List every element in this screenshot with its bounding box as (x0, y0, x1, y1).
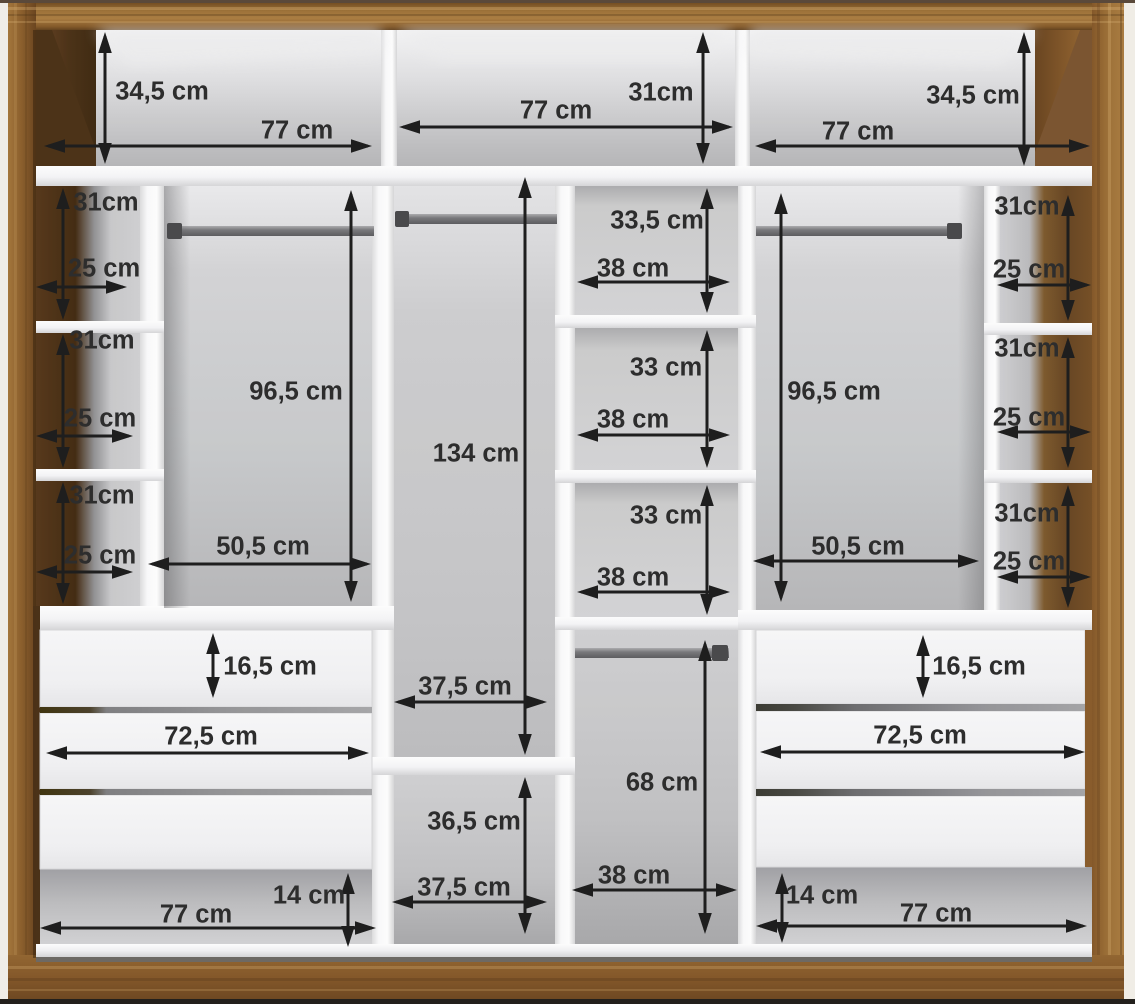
svg-text:77 cm: 77 cm (900, 899, 972, 927)
svg-text:33 cm: 33 cm (630, 353, 702, 381)
svg-text:34,5 cm: 34,5 cm (926, 81, 1020, 109)
svg-text:34,5 cm: 34,5 cm (115, 77, 209, 105)
svg-text:25 cm: 25 cm (993, 255, 1065, 283)
svg-text:134 cm: 134 cm (433, 439, 520, 467)
svg-text:72,5 cm: 72,5 cm (164, 722, 258, 750)
svg-text:77 cm: 77 cm (261, 116, 333, 144)
svg-text:31cm: 31cm (994, 499, 1059, 527)
svg-text:25 cm: 25 cm (64, 541, 136, 569)
svg-text:38 cm: 38 cm (597, 254, 669, 282)
svg-text:38 cm: 38 cm (597, 563, 669, 591)
svg-text:37,5 cm: 37,5 cm (418, 672, 512, 700)
svg-text:96,5 cm: 96,5 cm (787, 377, 881, 405)
svg-text:33,5 cm: 33,5 cm (610, 206, 704, 234)
svg-text:16,5 cm: 16,5 cm (223, 652, 317, 680)
svg-text:33 cm: 33 cm (630, 501, 702, 529)
svg-text:38 cm: 38 cm (597, 405, 669, 433)
svg-text:50,5 cm: 50,5 cm (811, 532, 905, 560)
svg-text:72,5 cm: 72,5 cm (873, 721, 967, 749)
svg-text:36,5 cm: 36,5 cm (427, 807, 521, 835)
svg-text:68 cm: 68 cm (626, 768, 698, 796)
svg-text:25 cm: 25 cm (64, 404, 136, 432)
svg-text:77 cm: 77 cm (822, 117, 894, 145)
svg-text:25 cm: 25 cm (993, 403, 1065, 431)
svg-text:14 cm: 14 cm (273, 881, 345, 909)
svg-text:16,5 cm: 16,5 cm (932, 652, 1026, 680)
svg-text:31cm: 31cm (994, 334, 1059, 362)
svg-text:37,5 cm: 37,5 cm (417, 873, 511, 901)
svg-text:25 cm: 25 cm (68, 254, 140, 282)
svg-text:38 cm: 38 cm (598, 861, 670, 889)
svg-text:14 cm: 14 cm (786, 881, 858, 909)
svg-text:77 cm: 77 cm (160, 900, 232, 928)
svg-text:31cm: 31cm (69, 326, 134, 354)
svg-text:96,5 cm: 96,5 cm (249, 377, 343, 405)
svg-text:31cm: 31cm (69, 481, 134, 509)
svg-text:50,5 cm: 50,5 cm (216, 532, 310, 560)
svg-text:25 cm: 25 cm (993, 547, 1065, 575)
svg-text:31cm: 31cm (73, 188, 138, 216)
svg-text:31cm: 31cm (628, 78, 693, 106)
svg-text:31cm: 31cm (994, 192, 1059, 220)
svg-text:77 cm: 77 cm (520, 96, 592, 124)
